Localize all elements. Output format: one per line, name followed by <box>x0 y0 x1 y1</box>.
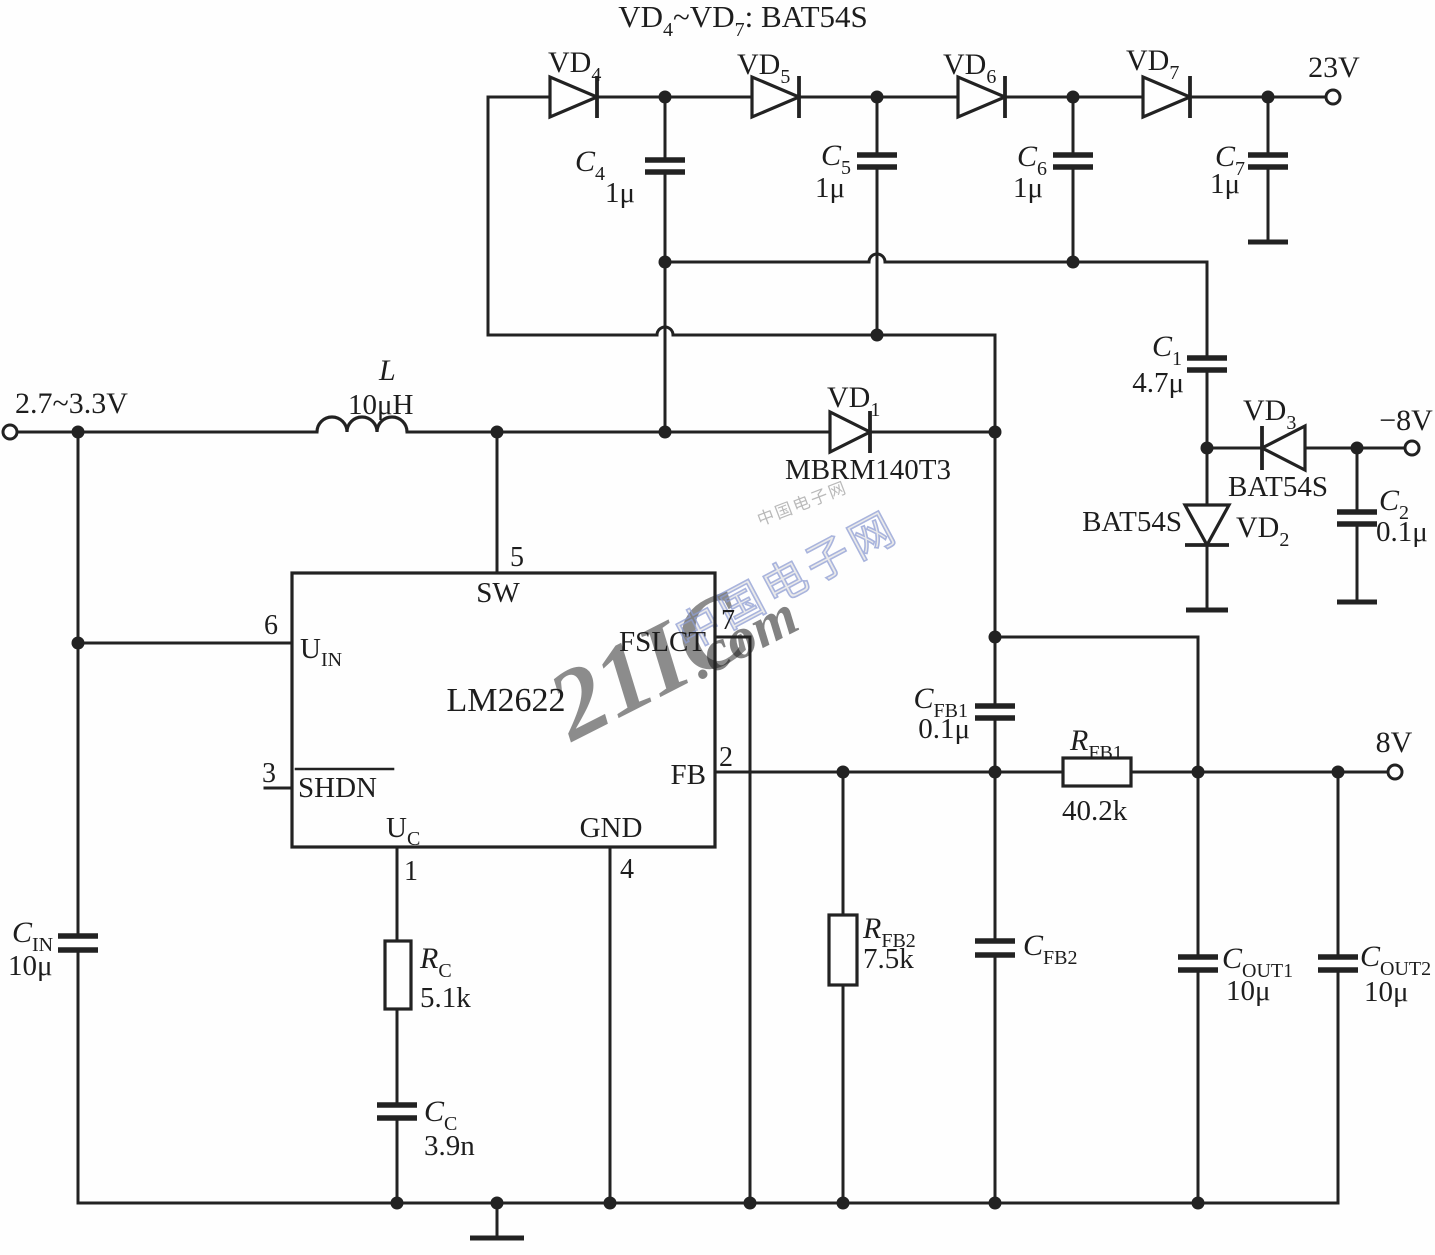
8v-label: 8V <box>1376 726 1413 759</box>
diode-triangle <box>1185 505 1229 545</box>
diode-vd6: VD6 <box>943 48 1005 118</box>
terminal-circle <box>1405 441 1419 455</box>
ref-sub: FB1 <box>1088 742 1122 764</box>
ic-pin-shdn-number: 3 <box>262 758 276 789</box>
junction-dot <box>1201 442 1214 455</box>
ref-main: VD <box>943 48 986 81</box>
ic-part-number: LM2622 <box>447 682 566 719</box>
resistor-body <box>829 915 857 985</box>
cap-value: 1μ <box>605 177 635 209</box>
junction-dot <box>989 1197 1002 1210</box>
ref-sub: 2 <box>1279 529 1289 551</box>
title-part: VD <box>618 0 663 34</box>
cap-value: 10μ <box>1364 976 1409 1008</box>
capacitor-cfb1: CFB1 0.1μ <box>914 682 1015 745</box>
junction-dot <box>1067 256 1080 269</box>
ic-pin-sw: SW <box>476 577 520 609</box>
diode-ref: VD2 <box>1236 511 1289 551</box>
ref-main: C <box>1023 929 1044 962</box>
cap-value: 3.9n <box>424 1130 475 1162</box>
ref-main: C <box>821 139 842 172</box>
diode-triangle <box>1262 426 1305 470</box>
input-voltage-label: 2.7~3.3V <box>15 387 128 420</box>
diode-part-number: BAT54S <box>1082 506 1182 538</box>
title-part: : BAT54S <box>745 0 868 34</box>
cap-ref: C1 <box>1152 330 1182 370</box>
ic-pin-fb: FB <box>671 759 706 791</box>
cap-value: 10μ <box>1226 975 1271 1007</box>
junction-dot <box>837 1197 850 1210</box>
ref-main: C <box>914 682 935 715</box>
cap-value: 0.1μ <box>918 713 970 745</box>
capacitor-c4: C4 1μ <box>575 145 685 209</box>
ref-main: R <box>419 942 438 975</box>
pin-label-sub: C <box>407 828 420 850</box>
terminal-circle <box>3 425 17 439</box>
diode-triangle <box>958 77 1005 117</box>
ref-main: C <box>1379 484 1400 517</box>
diode-triangle <box>752 77 799 117</box>
junction-dot <box>659 91 672 104</box>
junction-dot <box>1351 442 1364 455</box>
watermark-center: 21IC 中国电子网 .com <box>530 503 907 763</box>
capacitor-cout2: COUT2 10μ <box>1318 940 1431 1008</box>
diode-vd5: VD5 <box>737 48 799 118</box>
resistor-rfb1: RFB1 40.2k <box>1062 724 1131 827</box>
ref-sub: 7 <box>1169 62 1179 84</box>
ref-main: VD <box>827 381 870 414</box>
diode-vd4: VD4 <box>548 46 601 118</box>
wire-fslct <box>715 637 750 1203</box>
junction-dot <box>72 426 85 439</box>
capacitor-cfb2: CFB2 <box>975 929 1077 969</box>
terminal-circle <box>1388 765 1402 779</box>
title-part: ~VD <box>673 0 735 34</box>
pin-label-sub: IN <box>321 649 342 671</box>
ref-main: VD <box>1243 394 1286 427</box>
ref-sub: 5 <box>780 66 790 88</box>
junction-dot <box>491 1197 504 1210</box>
cap-value: 10μ <box>8 950 53 982</box>
junction-dot <box>837 766 850 779</box>
diode-ref: VD7 <box>1126 44 1179 84</box>
ic-pin-uin: UIN <box>300 633 342 671</box>
title-sub: 7 <box>735 19 745 41</box>
pin-label-main: U <box>386 812 407 844</box>
ref-sub: 6 <box>986 66 996 88</box>
resistor-value: 5.1k <box>420 982 471 1014</box>
inductor-value: 10μH <box>348 389 414 421</box>
resistor-value: 40.2k <box>1062 795 1128 827</box>
capacitor-c2: C2 0.1μ <box>1337 484 1428 548</box>
capacitor-c7: C7 1μ <box>1210 140 1288 200</box>
ref-main: C <box>1152 330 1173 363</box>
capacitor-c1: C1 4.7μ <box>1132 330 1227 399</box>
ic-pin-sw-number: 5 <box>510 542 524 573</box>
ic-pin-uin-number: 6 <box>264 610 278 641</box>
ref-sub: C <box>438 960 451 982</box>
cap-ref: CC <box>424 1095 457 1135</box>
cap-value: 1μ <box>1210 168 1240 200</box>
junction-dot <box>1332 766 1345 779</box>
ref-main: R <box>862 912 881 945</box>
junction-dot <box>989 631 1002 644</box>
capacitor-cin: CIN 10μ <box>8 916 98 982</box>
title-sub: 4 <box>663 19 673 41</box>
ref-main: VD <box>1126 44 1169 77</box>
diode-triangle <box>1143 77 1190 117</box>
diode-ref: VD3 <box>1243 394 1296 434</box>
ref-main: VD <box>1236 511 1279 544</box>
capacitor-c5: C5 1μ <box>815 139 897 204</box>
diode-vd2: BAT54S VD2 <box>1082 505 1289 551</box>
23v-label: 23V <box>1308 51 1360 84</box>
resistor-rfb2: RFB2 7.5k <box>829 912 916 985</box>
ref-main: C <box>1360 940 1381 973</box>
inductor-l: L 10μH <box>317 354 414 432</box>
ref-main: C <box>12 916 33 949</box>
diode-triangle <box>830 412 870 452</box>
cap-value: 4.7μ <box>1132 367 1184 399</box>
junction-dot <box>871 91 884 104</box>
terminal-circle <box>1326 90 1340 104</box>
ic-pin-uc: UC <box>386 812 420 850</box>
junction-dot <box>72 637 85 650</box>
junction-dot <box>1067 91 1080 104</box>
junction-dot <box>1192 1197 1205 1210</box>
cap-ref: C4 <box>575 145 605 185</box>
cap-ref: CFB2 <box>1023 929 1077 969</box>
ref-sub: 1 <box>870 399 880 421</box>
junction-dot <box>989 766 1002 779</box>
capacitor-cc: CC 3.9n <box>377 1095 475 1162</box>
junction-dot <box>744 1197 757 1210</box>
ref-main: C <box>1017 140 1038 173</box>
junction-dot <box>491 426 504 439</box>
ic-pin-gnd-number: 4 <box>620 854 634 885</box>
ref-main: C <box>424 1095 445 1128</box>
cap-value: 1μ <box>815 172 845 204</box>
ref-sub: 4 <box>591 64 601 86</box>
resistor-value: 7.5k <box>863 943 914 975</box>
junction-dot <box>659 426 672 439</box>
diode-vd7: VD7 <box>1126 44 1190 118</box>
junction-dot <box>1262 91 1275 104</box>
pin-label-main: U <box>300 633 321 665</box>
junction-dot <box>1192 766 1205 779</box>
ic-pin-fb-number: 2 <box>719 742 733 773</box>
resistor-rc: RC 5.1k <box>385 941 471 1014</box>
junction-dot <box>659 256 672 269</box>
ic-pin-fslct-number: 7 <box>721 605 735 636</box>
ic-pin-gnd: GND <box>580 812 643 844</box>
capacitor-c6: C6 1μ <box>1013 140 1093 204</box>
ref-main: VD <box>548 46 591 79</box>
wire-8v-bus <box>488 97 995 432</box>
cap-value: 0.1μ <box>1376 516 1428 548</box>
inductor-ref: L <box>378 354 396 387</box>
ref-sub: 4 <box>595 163 605 185</box>
cap-value: 1μ <box>1013 172 1043 204</box>
ref-main: R <box>1069 724 1088 757</box>
diode-part-number: MBRM140T3 <box>785 454 951 486</box>
neg8v-label: −8V <box>1379 404 1433 437</box>
resistor-body <box>385 941 411 1009</box>
ic-pin-uc-number: 1 <box>404 856 418 887</box>
diode-triangle <box>550 77 597 117</box>
resistor-ref: RC <box>419 942 452 982</box>
ref-main: C <box>575 145 596 178</box>
ic-pin-fslct: FSLCT <box>619 626 706 658</box>
schematic-page: 21IC 中国电子网 .com 中国电子网 VD4~VD7: BAT54S <box>0 0 1435 1255</box>
junction-dot <box>871 329 884 342</box>
cap-ref: COUT2 <box>1360 940 1431 980</box>
junction-dot <box>604 1197 617 1210</box>
ref-sub: FB2 <box>1043 947 1077 969</box>
wire-ground-bus <box>78 950 1338 1203</box>
schematic-title: VD4~VD7: BAT54S <box>618 0 868 41</box>
ref-sub: 3 <box>1286 412 1296 434</box>
junction-dot <box>391 1197 404 1210</box>
wire-sw-pump-bus <box>665 254 1207 358</box>
capacitor-cout1: COUT1 10μ <box>1178 942 1293 1007</box>
diode-part-number: BAT54S <box>1228 471 1328 503</box>
ref-main: C <box>1222 942 1243 975</box>
ref-main: VD <box>737 48 780 81</box>
junction-dot <box>989 426 1002 439</box>
ic-pin-shdn: SHDN <box>298 772 377 804</box>
